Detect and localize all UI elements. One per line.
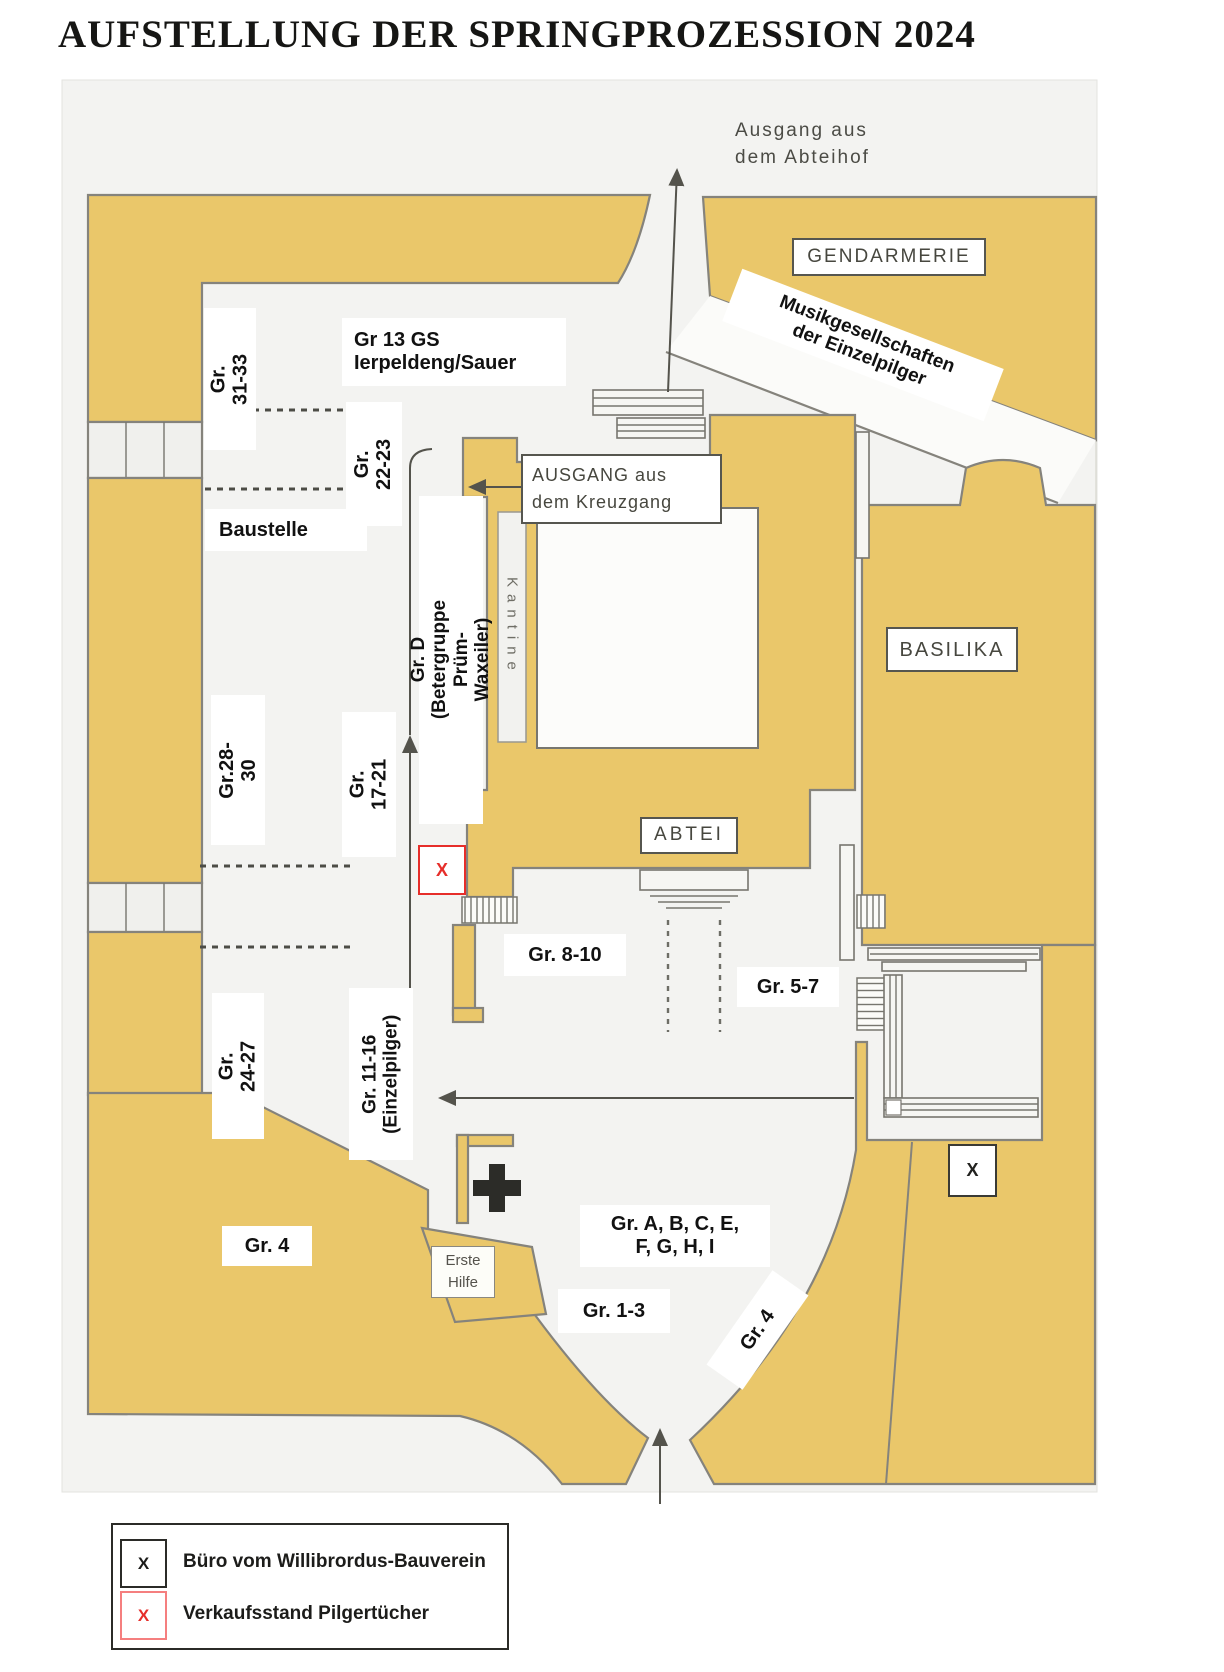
site-plan-drawing: [0, 0, 1224, 1672]
stairs-east-upper: [857, 895, 885, 928]
label-gr-1-3: Gr. 1-3: [558, 1289, 670, 1333]
label-gr-24-27: Gr. 24-27: [212, 993, 264, 1139]
label-gr-8-10: Gr. 8-10: [504, 934, 626, 976]
wall-east-passage: [856, 432, 869, 558]
wall-abbey-east: [840, 845, 854, 960]
legend-office-swatch: X: [120, 1539, 167, 1588]
label-gr-31-33: Gr. 31-33: [204, 308, 256, 450]
cloister-courtyard: [537, 508, 758, 748]
label-gr-d-betergruppe: Gr. D (Betergruppe Prüm-Waxeiler): [419, 496, 483, 824]
label-gr-11-16: Gr. 11-16 (Einzelpilger): [349, 988, 413, 1160]
label-gr-letters: Gr. A, B, C, E, F, G, H, I: [580, 1205, 770, 1267]
legend-sales-label: Verkaufsstand Pilgertücher: [183, 1591, 429, 1636]
label-basilika: BASILIKA: [886, 627, 1018, 672]
label-gr-28-30: Gr.28-30: [211, 695, 265, 845]
building-basilika: [862, 460, 1095, 945]
stairs-west: [462, 897, 517, 923]
legend-office-label: Büro vom Willibrordus-Bauverein: [183, 1539, 486, 1584]
label-gendarmerie: GENDARMERIE: [792, 238, 986, 276]
label-gr-4-west: Gr. 4: [222, 1226, 312, 1266]
wall-courtyard-west-foot: [453, 1008, 483, 1022]
basilika-terrace: [868, 948, 1040, 971]
legend-sales-swatch: X: [120, 1591, 167, 1640]
label-abtei: ABTEI: [640, 817, 738, 854]
building-west-column: [88, 478, 202, 883]
passage-cells-upper: [88, 422, 202, 478]
label-gr-5-7: Gr. 5-7: [737, 967, 839, 1007]
label-baustelle: Baustelle: [205, 509, 367, 551]
wall-courtyard-west: [453, 925, 475, 1015]
label-gr-22-23: Gr. 22-23: [346, 402, 402, 526]
building-west-column-south: [88, 932, 202, 1095]
label-kantine: Kantine: [498, 516, 526, 738]
procession-plan-page: AUFSTELLUNG DER SPRINGPROZESSION 2024: [0, 0, 1224, 1672]
label-erste-hilfe: Erste Hilfe: [431, 1246, 495, 1298]
label-ausgang-kreuzgang: AUSGANG aus dem Kreuzgang: [521, 454, 722, 524]
passage-cells-lower: [88, 883, 202, 932]
label-gr-17-21: Gr. 17-21: [342, 712, 396, 857]
legend: X Büro vom Willibrordus-Bauverein X Verk…: [111, 1523, 509, 1650]
wall-near-cross-vertical: [457, 1135, 468, 1223]
label-gr-13-gs: Gr 13 GS Ierpeldeng/Sauer: [342, 318, 566, 386]
office-marker: X: [948, 1144, 997, 1197]
label-ausgang-abteihof: Ausgang aus dem Abteihof: [735, 118, 870, 171]
sales-stand-marker: X: [418, 845, 466, 895]
